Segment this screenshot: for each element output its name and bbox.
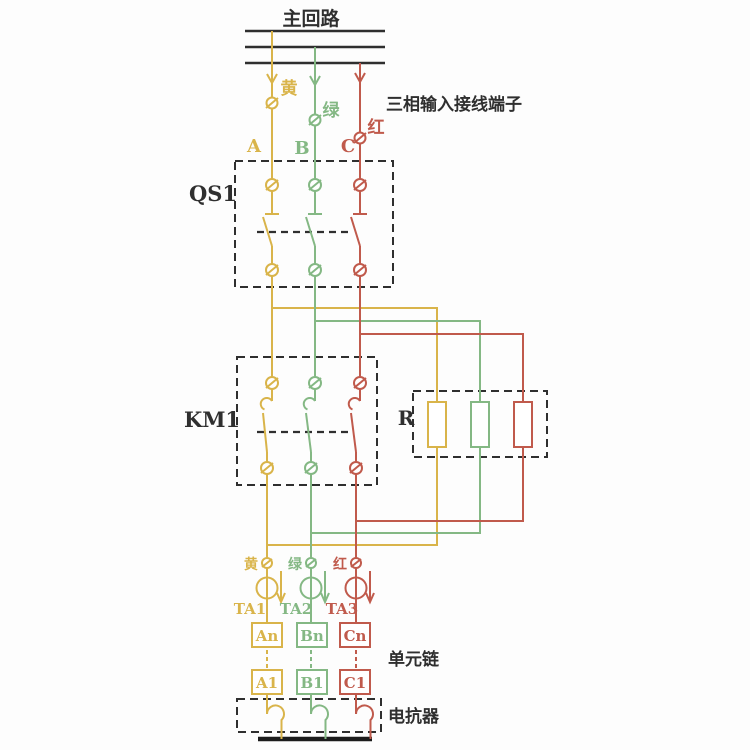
phase-c-km1-hook	[349, 398, 360, 410]
phase-c-qs1-blade	[351, 217, 360, 246]
disconnector-label: QS1	[189, 181, 237, 206]
phase-c-ct-label: TA3	[326, 600, 358, 618]
phase-b-ct-label: TA2	[280, 600, 312, 618]
circuit-diagram: 主回路 三相输入接线端子 QS1 KM1 R 单元链 电抗器	[0, 0, 750, 750]
resistor-label: R	[398, 406, 415, 430]
phase-c-color-label-top: 红	[368, 117, 385, 138]
phase-b-color-label-bottom: 绿	[288, 556, 303, 573]
phase-b-km1-hook	[304, 398, 315, 410]
phase-a-resistor-return	[267, 447, 437, 545]
phase-b-color-label-top: 绿	[323, 100, 341, 121]
phase-c-color-label-bottom: 红	[333, 556, 347, 573]
phase-b: 绿 B 绿 TA2 Bn B1	[280, 47, 489, 739]
phase-b-letter: B	[294, 138, 309, 159]
reactor-box	[237, 699, 381, 732]
reactor-label: 电抗器	[388, 706, 440, 727]
phase-c-resistor-return	[356, 447, 523, 521]
unit-chain-label: 单元链	[388, 649, 440, 670]
input-terminals-label: 三相输入接线端子	[386, 94, 522, 115]
phase-b-resistor	[471, 402, 489, 447]
phase-c-letter: C	[341, 136, 355, 157]
phase-a-color-label-bottom: 黄	[244, 556, 258, 573]
page-title: 主回路	[282, 7, 340, 30]
diagram-canvas: 主回路 三相输入接线端子 QS1 KM1 R 单元链 电抗器	[0, 0, 750, 750]
phase-a-ct-label: TA1	[234, 600, 266, 618]
phase-c-cell-bottom-label: C1	[344, 674, 366, 692]
phase-c-labels: 红 C 红 TA3 Cn C1	[326, 117, 385, 692]
phase-a-color-label-top: 黄	[281, 78, 298, 99]
phase-b-cell-top-label: Bn	[300, 627, 324, 645]
phase-b-cell-bottom-label: B1	[300, 674, 323, 692]
phase-a-letter: A	[246, 136, 262, 157]
phase-c-cell-top-label: Cn	[344, 627, 367, 645]
phase-a-cell-bottom-label: A1	[255, 674, 278, 692]
contactor-label: KM1	[184, 407, 240, 432]
phase-c-resistor	[514, 402, 532, 447]
phase-a-cell-top-label: An	[255, 627, 279, 645]
phase-a-km1-hook	[261, 398, 272, 410]
black-labels: 主回路 三相输入接线端子 QS1 KM1 R 单元链 电抗器	[184, 7, 522, 727]
phase-c-km1-blade	[351, 413, 356, 452]
phase-a-resistor	[428, 402, 446, 447]
